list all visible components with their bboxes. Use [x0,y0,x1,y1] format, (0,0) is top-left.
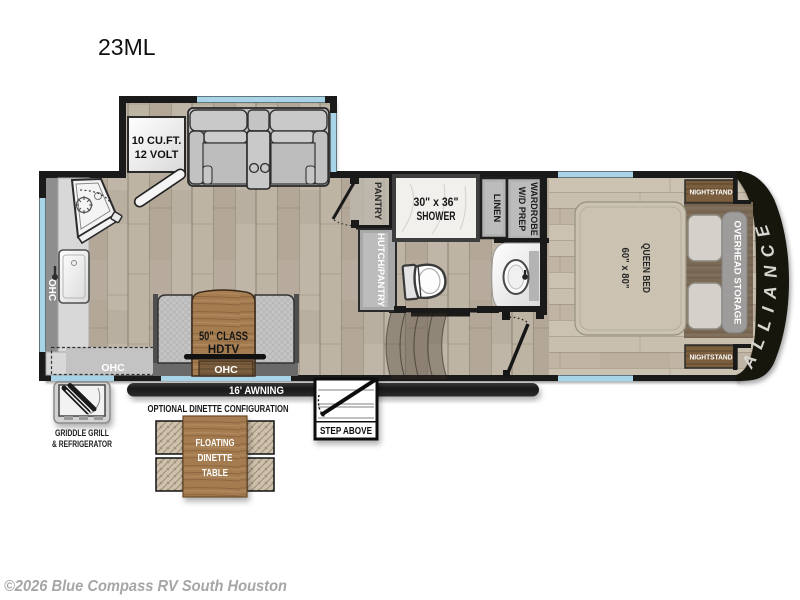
svg-text:OVERHEAD STORAGE: OVERHEAD STORAGE [733,221,743,325]
svg-text:10 CU.FT.: 10 CU.FT. [132,135,182,147]
svg-text:STEP ABOVE: STEP ABOVE [320,425,372,437]
svg-text:16' AWNING: 16' AWNING [229,385,284,397]
svg-text:LINEN: LINEN [491,194,502,223]
svg-text:DINETTE: DINETTE [198,452,233,464]
svg-text:©2026 Blue Compass RV South Ho: ©2026 Blue Compass RV South Houston [4,578,287,595]
svg-text:60" x 80": 60" x 80" [619,248,630,289]
svg-text:NIGHTSTAND: NIGHTSTAND [690,353,734,362]
svg-text:HUTCH/PANTRY: HUTCH/PANTRY [375,233,386,308]
svg-text:30" x 36": 30" x 36" [414,195,459,209]
svg-text:TABLE: TABLE [202,467,228,479]
svg-text:12 VOLT: 12 VOLT [135,149,179,161]
svg-text:NIGHTSTAND: NIGHTSTAND [690,188,734,197]
svg-text:& REFRIGERATOR: & REFRIGERATOR [52,439,112,450]
svg-text:OPTIONAL DINETTE CONFIGURATION: OPTIONAL DINETTE CONFIGURATION [148,403,289,415]
svg-text:SHOWER: SHOWER [417,209,456,223]
svg-text:GRIDDLE GRILL: GRIDDLE GRILL [55,428,109,439]
svg-text:W/D PREP: W/D PREP [517,187,527,232]
svg-text:QUEEN BED: QUEEN BED [640,243,652,293]
svg-text:OHC: OHC [101,362,125,374]
svg-text:PANTRY: PANTRY [372,182,383,221]
svg-text:WARDROBE: WARDROBE [529,182,539,236]
svg-text:FLOATING: FLOATING [196,437,235,449]
svg-text:OHC: OHC [214,364,238,376]
svg-text:OHC: OHC [46,279,57,301]
svg-text:23ML: 23ML [98,34,156,60]
svg-text:50" CLASS: 50" CLASS [199,331,248,343]
